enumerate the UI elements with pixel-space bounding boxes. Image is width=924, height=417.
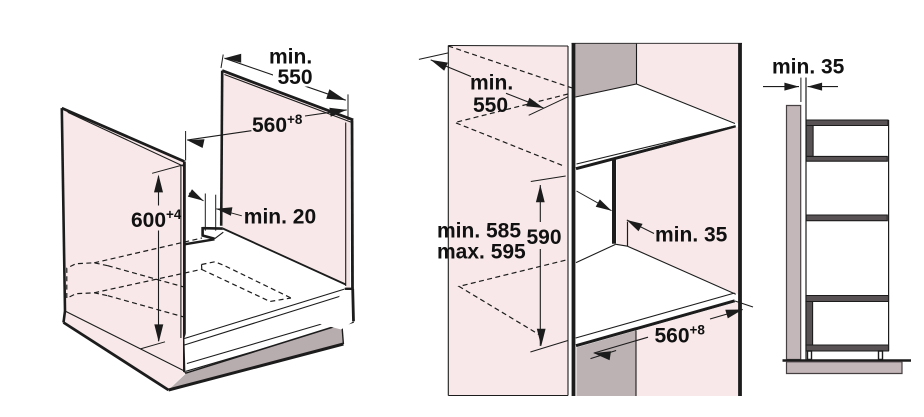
- svg-text:550: 550: [278, 66, 313, 89]
- svg-text:min. 35: min. 35: [655, 224, 728, 247]
- svg-text:550: 550: [473, 94, 508, 117]
- svg-text:min. 585: min. 585: [437, 219, 521, 242]
- svg-text:min. 20: min. 20: [244, 206, 316, 229]
- svg-text:min. 35: min. 35: [772, 56, 845, 79]
- svg-text:max. 595: max. 595: [437, 240, 526, 263]
- svg-text:min.: min.: [470, 72, 513, 95]
- svg-text:590: 590: [527, 226, 562, 249]
